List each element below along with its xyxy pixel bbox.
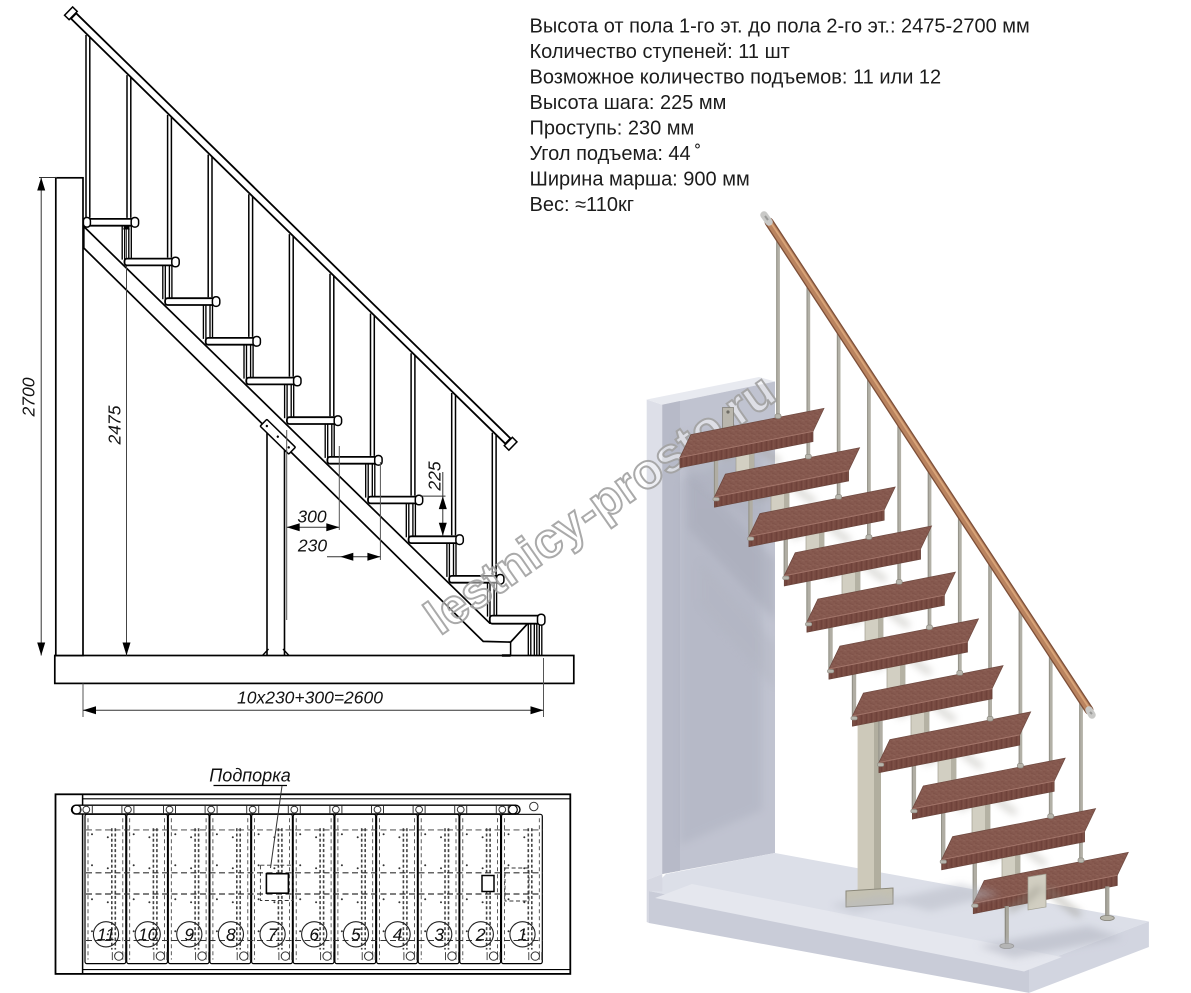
svg-text:9: 9 [184, 924, 194, 944]
svg-text:230: 230 [297, 536, 327, 556]
svg-text:4: 4 [393, 924, 403, 944]
svg-text:11: 11 [97, 924, 115, 944]
svg-text:2: 2 [475, 924, 486, 944]
svg-text:Высота шага: 225 мм: Высота шага: 225 мм [530, 92, 727, 114]
svg-text:2700: 2700 [19, 377, 39, 417]
svg-text:6: 6 [309, 924, 319, 944]
svg-text:10: 10 [138, 924, 158, 944]
svg-text:1: 1 [518, 924, 528, 944]
svg-text:8: 8 [226, 924, 236, 944]
svg-text:Количество ступеней: 11 шт: Количество ступеней: 11 шт [530, 41, 790, 63]
svg-text:Проступь: 230 мм: Проступь: 230 мм [530, 118, 695, 140]
svg-text:Возможное количество подъемов:: Возможное количество подъемов: 11 или 12 [530, 67, 942, 89]
svg-text:5: 5 [351, 924, 361, 944]
svg-text:Вес: ≈110кг: Вес: ≈110кг [530, 194, 634, 216]
svg-text:Высота от пола 1-го эт. до пол: Высота от пола 1-го эт. до пола 2-го эт.… [530, 16, 1030, 38]
svg-text:2475: 2475 [105, 405, 125, 445]
svg-text:Ширина марша: 900 мм: Ширина марша: 900 мм [530, 169, 750, 191]
svg-text:3: 3 [434, 924, 444, 944]
svg-text:225: 225 [425, 461, 445, 491]
svg-text:10x230+300=2600: 10x230+300=2600 [237, 688, 383, 708]
svg-text:Подпорка: Подпорка [209, 766, 290, 786]
svg-text:7: 7 [268, 924, 279, 944]
svg-text:300: 300 [297, 507, 326, 527]
svg-text:Угол подъема: 44 ˚: Угол подъема: 44 ˚ [530, 143, 702, 165]
